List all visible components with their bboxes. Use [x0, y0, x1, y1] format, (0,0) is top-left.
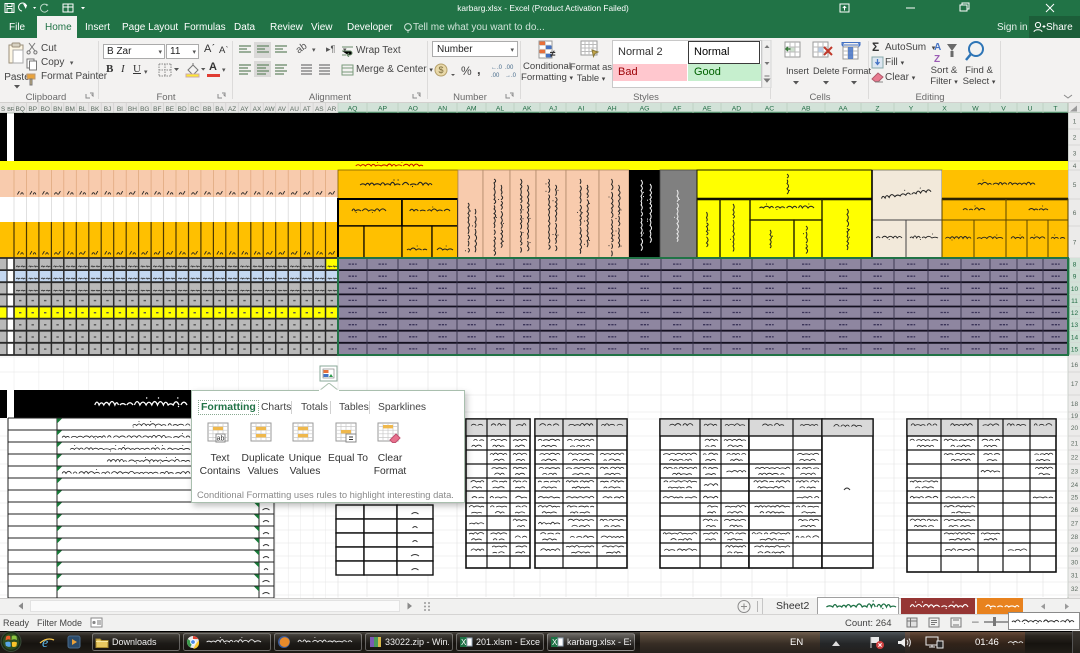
- svg-text:20: 20: [1071, 425, 1079, 432]
- svg-text:23: 23: [1071, 469, 1079, 476]
- svg-text:e: e: [42, 636, 48, 650]
- svg-text:→.0: →.0: [505, 73, 517, 79]
- svg-text:AT: AT: [303, 106, 311, 113]
- svg-text:BJ: BJ: [104, 106, 112, 113]
- svg-text:AJ: AJ: [549, 106, 557, 113]
- svg-text:AY: AY: [240, 106, 249, 113]
- svg-text:AC: AC: [765, 106, 775, 113]
- svg-text:AH: AH: [607, 106, 617, 113]
- svg-text:AV: AV: [278, 106, 287, 113]
- svg-text:BL: BL: [79, 106, 87, 113]
- svg-text:BK: BK: [91, 106, 100, 113]
- svg-text:BM: BM: [65, 106, 75, 113]
- svg-text:21: 21: [1071, 441, 1079, 448]
- svg-text:AX: AX: [253, 106, 262, 113]
- svg-text:AK: AK: [522, 106, 532, 113]
- svg-text:22: 22: [1071, 455, 1079, 462]
- svg-text:V: V: [1001, 106, 1006, 113]
- svg-text:T: T: [1053, 106, 1057, 113]
- svg-text:$: $: [438, 65, 443, 75]
- svg-text:AD: AD: [732, 106, 742, 113]
- svg-text:1: 1: [1073, 119, 1077, 126]
- svg-text:15: 15: [1071, 346, 1079, 353]
- svg-text:28: 28: [1071, 534, 1079, 541]
- svg-text:18: 18: [1071, 401, 1079, 408]
- svg-text:,: ,: [477, 62, 481, 77]
- svg-text:17: 17: [1071, 381, 1079, 388]
- svg-text:27: 27: [1071, 521, 1079, 528]
- svg-text:24: 24: [1071, 482, 1079, 489]
- svg-text:AB: AB: [801, 106, 811, 113]
- svg-text:AG: AG: [640, 106, 650, 113]
- svg-text:AF: AF: [673, 106, 682, 113]
- svg-text:2: 2: [1073, 135, 1077, 142]
- svg-text:BA: BA: [215, 106, 224, 113]
- svg-text:8: 8: [1073, 262, 1077, 269]
- svg-text:BG: BG: [140, 106, 149, 113]
- svg-text:AI: AI: [578, 106, 585, 113]
- svg-text:X: X: [942, 106, 947, 113]
- svg-text:6: 6: [1073, 210, 1077, 217]
- svg-text:W: W: [972, 106, 979, 113]
- svg-text:AU: AU: [290, 106, 299, 113]
- svg-text:S: S: [1, 106, 5, 113]
- svg-text:BD: BD: [178, 106, 187, 113]
- svg-text:19: 19: [1071, 413, 1079, 420]
- svg-text:BC: BC: [190, 106, 199, 113]
- svg-text:9: 9: [1073, 274, 1077, 281]
- svg-text:BF: BF: [153, 106, 161, 113]
- svg-text:AL: AL: [496, 106, 505, 113]
- svg-text:ab: ab: [217, 436, 225, 443]
- svg-text:Z: Z: [875, 106, 879, 113]
- svg-text:Y: Y: [909, 106, 914, 113]
- svg-text:11: 11: [1071, 298, 1078, 305]
- svg-text:AW: AW: [264, 106, 275, 113]
- svg-text:AP: AP: [378, 106, 388, 113]
- svg-text:AM: AM: [466, 106, 477, 113]
- svg-text:3: 3: [1073, 151, 1077, 158]
- svg-text:32: 32: [1071, 586, 1079, 593]
- svg-text:Z: Z: [934, 54, 940, 64]
- svg-text:BI: BI: [117, 106, 123, 113]
- svg-text:AZ: AZ: [228, 106, 236, 113]
- svg-text:5: 5: [1073, 182, 1077, 189]
- svg-text:4: 4: [1073, 163, 1077, 170]
- svg-text:X: X: [461, 638, 467, 647]
- svg-text:AQ: AQ: [348, 106, 358, 113]
- svg-text:.00: .00: [505, 65, 514, 71]
- svg-text:BH: BH: [128, 106, 137, 113]
- svg-text:14: 14: [1071, 334, 1079, 341]
- svg-text:BN: BN: [53, 106, 62, 113]
- svg-text:BO: BO: [40, 106, 49, 113]
- svg-text:29: 29: [1071, 547, 1079, 554]
- svg-text:X: X: [552, 638, 558, 647]
- svg-text:BP: BP: [28, 106, 37, 113]
- svg-text:31: 31: [1071, 573, 1079, 580]
- svg-text:←.0: ←.0: [491, 65, 503, 71]
- svg-text:26: 26: [1071, 507, 1079, 514]
- svg-text:BQ: BQ: [15, 106, 24, 113]
- svg-text:AE: AE: [702, 106, 712, 113]
- svg-text:A: A: [934, 42, 941, 53]
- svg-text:10: 10: [1071, 286, 1079, 293]
- svg-text:AO: AO: [408, 106, 418, 113]
- svg-text:25: 25: [1071, 495, 1079, 502]
- svg-text:BE: BE: [165, 106, 174, 113]
- svg-text:AA: AA: [838, 106, 848, 113]
- svg-text:≠: ≠: [550, 49, 556, 60]
- svg-text:12: 12: [1071, 310, 1079, 317]
- svg-text:7: 7: [1073, 240, 1077, 247]
- svg-text:13: 13: [1071, 322, 1079, 329]
- svg-text:%: %: [461, 64, 472, 78]
- svg-text:BB: BB: [203, 106, 212, 113]
- svg-text:AN: AN: [438, 106, 448, 113]
- svg-text:16: 16: [1071, 362, 1079, 369]
- svg-text:.00: .00: [491, 73, 500, 79]
- svg-text:AS: AS: [315, 106, 324, 113]
- svg-text:AR: AR: [327, 106, 336, 113]
- svg-text:U: U: [1028, 106, 1033, 113]
- svg-text:30: 30: [1071, 560, 1079, 567]
